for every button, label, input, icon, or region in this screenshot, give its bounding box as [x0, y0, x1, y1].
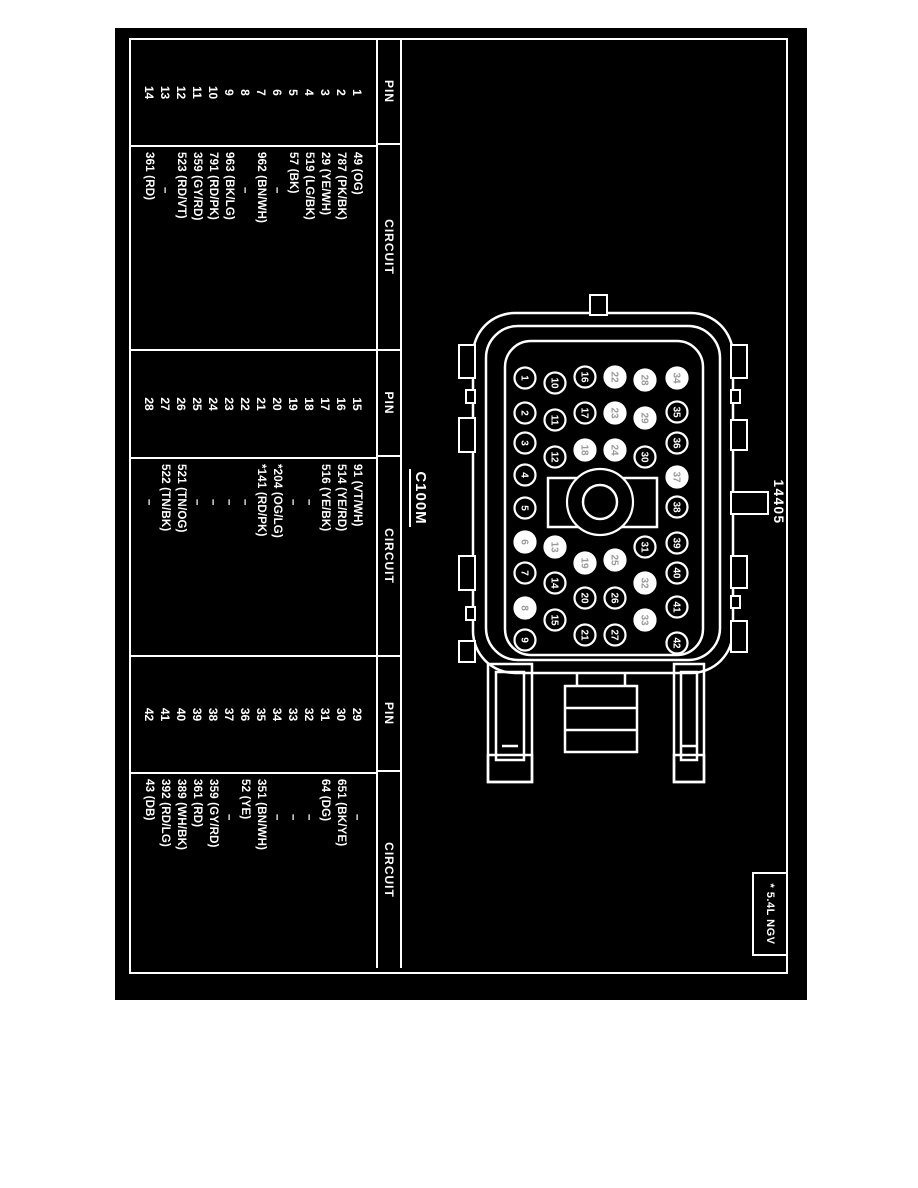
pin-41: 41 [667, 597, 688, 618]
table-row: 8– [237, 40, 253, 349]
svg-text:18: 18 [579, 444, 590, 456]
svg-text:33: 33 [639, 614, 650, 626]
svg-text:19: 19 [579, 557, 590, 569]
svg-text:41: 41 [671, 601, 682, 613]
pin-28: 28 [635, 370, 656, 391]
pin-cell: 19 [286, 351, 300, 457]
svg-text:5: 5 [519, 505, 530, 511]
pin-6: 6 [515, 532, 536, 553]
pin-24: 24 [605, 440, 626, 461]
circuit-cell: – [271, 772, 283, 968]
pin-cell: 1 [350, 40, 364, 145]
left-latch-tab [590, 295, 607, 315]
circuit-cell: – [287, 772, 299, 968]
circuit-cell: 521 (TN/OG) [175, 457, 187, 655]
table-row: 3652 (YE) [237, 657, 253, 968]
table-row: 26521 (TN/OG) [173, 351, 189, 655]
svg-text:35: 35 [671, 406, 682, 418]
svg-text:24: 24 [609, 444, 620, 456]
pin-table-1: PINCIRCUIT149 (OG)2787 (PK/BK)329 (YE/WH… [131, 40, 400, 349]
circuit-cell: 64 (DG) [319, 772, 331, 968]
pin-cell: 15 [350, 351, 364, 457]
table-row: 9963 (BK/LG) [221, 40, 237, 349]
pin-10: 10 [545, 373, 566, 394]
svg-text:6: 6 [519, 539, 530, 545]
pin-37: 37 [667, 467, 688, 488]
pin-32: 32 [635, 573, 656, 594]
svg-text:31: 31 [639, 541, 650, 553]
table-row: 21*141 (RD/PK) [253, 351, 269, 655]
pin-cell: 40 [174, 657, 188, 772]
svg-text:36: 36 [671, 437, 682, 449]
pin-19: 19 [575, 553, 596, 574]
pin-circuit-tables: PINCIRCUIT149 (OG)2787 (PK/BK)329 (YE/WH… [131, 40, 402, 968]
pin-cell: 17 [318, 351, 332, 457]
footnote-text: * 5.4L NGV [764, 883, 776, 944]
circuit-cell: – [191, 457, 203, 655]
circuit-cell: 962 (BN/WH) [255, 145, 267, 349]
svg-text:26: 26 [609, 592, 620, 604]
table-row: 16514 (YE/RD) [333, 351, 349, 655]
svg-text:22: 22 [609, 371, 620, 383]
pin-1: 1 [515, 368, 536, 389]
pin-11: 11 [545, 410, 566, 431]
svg-text:7: 7 [519, 570, 530, 576]
part-number-label: 14405 [771, 462, 786, 542]
table-row: 2787 (PK/BK) [333, 40, 349, 349]
svg-text:13: 13 [549, 541, 560, 553]
circuit-cell: 787 (PK/BK) [335, 145, 347, 349]
circuit-cell: 359 (GY/RD) [207, 772, 219, 968]
pin-3: 3 [515, 433, 536, 454]
circuit-cell: – [303, 772, 315, 968]
pin-34: 34 [667, 368, 688, 389]
pin-cell: 29 [350, 657, 364, 772]
pin-cell: 2 [334, 40, 348, 145]
pin-31: 31 [635, 537, 656, 558]
circuit-cell: 791 (RD/PK) [207, 145, 219, 349]
table-row: 37– [221, 657, 237, 968]
pin-23: 23 [605, 403, 626, 424]
circuit-cell: 519 (LG/BK) [303, 145, 315, 349]
pin-20: 20 [575, 588, 596, 609]
circuit-cell: – [239, 457, 251, 655]
top-index-tabs [731, 345, 768, 652]
circuit-cell: – [223, 772, 235, 968]
svg-text:30: 30 [639, 451, 650, 463]
circuit-cell: 389 (WH/BK) [175, 772, 187, 968]
circuit-cell: 963 (BK/LG) [223, 145, 235, 349]
pin-cell: 13 [158, 40, 172, 145]
pin-9: 9 [515, 630, 536, 651]
pin-39: 39 [667, 533, 688, 554]
pin-cell: 21 [254, 351, 268, 457]
pin-26: 26 [605, 588, 626, 609]
table-row: 33– [285, 657, 301, 968]
table-row: 38359 (GY/RD) [205, 657, 221, 968]
pin-cell: 41 [158, 657, 172, 772]
table-row: 1591 (VT/WH) [349, 351, 365, 655]
svg-text:14: 14 [549, 577, 560, 589]
scanned-wiring-diagram-page: 1234567891011121314151617181920212223242… [0, 0, 918, 1188]
table-row: 4243 (DB) [141, 657, 157, 968]
table-row: 40389 (WH/BK) [173, 657, 189, 968]
circuit-cell: 523 (RD/VT) [175, 145, 187, 349]
pin-cell: 32 [302, 657, 316, 772]
pin-cell: 34 [270, 657, 284, 772]
pin-16: 16 [575, 367, 596, 388]
circuit-cell: 651 (BK/YE) [335, 772, 347, 968]
footnote-box: * 5.4L NGV [752, 872, 788, 956]
svg-text:23: 23 [609, 407, 620, 419]
pin-29: 29 [635, 408, 656, 429]
pin-header: PIN [378, 657, 400, 772]
svg-text:20: 20 [579, 592, 590, 604]
pin-30: 30 [635, 447, 656, 468]
circuit-header: CIRCUIT [378, 772, 400, 968]
circuit-header: CIRCUIT [378, 457, 400, 655]
pin-cell: 7 [254, 40, 268, 145]
pin-cell: 38 [206, 657, 220, 772]
table-row: 10791 (RD/PK) [205, 40, 221, 349]
circuit-cell: 516 (YE/BK) [319, 457, 331, 655]
table-row: 14361 (RD) [141, 40, 157, 349]
pin-cell: 4 [302, 40, 316, 145]
svg-text:16: 16 [579, 371, 590, 383]
pin-cell: 20 [270, 351, 284, 457]
svg-text:25: 25 [609, 554, 620, 566]
svg-text:37: 37 [671, 471, 682, 483]
pin-cell: 25 [190, 351, 204, 457]
circuit-cell: 57 (BK) [287, 145, 299, 349]
pin-5: 5 [515, 498, 536, 519]
table-row: 34– [269, 657, 285, 968]
table-row: 39361 (RD) [189, 657, 205, 968]
pin-cell: 6 [270, 40, 284, 145]
pin-cell: 26 [174, 351, 188, 457]
circuit-cell: – [239, 145, 251, 349]
pin-17: 17 [575, 403, 596, 424]
circuit-header: CIRCUIT [378, 145, 400, 349]
table-row: 25– [189, 351, 205, 655]
circuit-cell: 351 (BN/WH) [255, 772, 267, 968]
pin-cell: 39 [190, 657, 204, 772]
pin-table-3: PINCIRCUIT29–30651 (BK/YE)3164 (DG)32–33… [131, 655, 400, 968]
svg-text:3: 3 [519, 440, 530, 446]
pin-cell: 5 [286, 40, 300, 145]
table-row: 29– [349, 657, 365, 968]
table-row: 11359 (GY/RD) [189, 40, 205, 349]
circuit-cell: 52 (YE) [239, 772, 251, 968]
table-row: 13– [157, 40, 173, 349]
circuit-cell: 359 (GY/RD) [191, 145, 203, 349]
table-row: 7962 (BN/WH) [253, 40, 269, 349]
center-bolt [548, 469, 657, 535]
pin-38: 38 [667, 497, 688, 518]
pin-cell: 24 [206, 351, 220, 457]
pin-cell: 35 [254, 657, 268, 772]
circuit-cell: – [287, 457, 299, 655]
pin-table-2: PINCIRCUIT1591 (VT/WH)16514 (YE/RD)17516… [131, 349, 400, 655]
table-row: 557 (BK) [285, 40, 301, 349]
table-row: 35351 (BN/WH) [253, 657, 269, 968]
circuit-cell: – [351, 772, 363, 968]
pin-cell: 3 [318, 40, 332, 145]
table-row: 27522 (TN/BK) [157, 351, 173, 655]
connector-diagram: 1234567891011121314151617181920212223242… [443, 280, 813, 800]
pin-14: 14 [545, 573, 566, 594]
table-row: 12523 (RD/VT) [173, 40, 189, 349]
pin-40: 40 [667, 563, 688, 584]
table-row: 17516 (YE/BK) [317, 351, 333, 655]
table-row: 6– [269, 40, 285, 349]
svg-text:4: 4 [519, 472, 530, 478]
pin-cell: 11 [190, 40, 204, 145]
svg-text:11: 11 [549, 415, 560, 426]
pin-4: 4 [515, 465, 536, 486]
svg-text:12: 12 [549, 451, 560, 463]
svg-text:34: 34 [671, 372, 682, 384]
table-row: 28– [141, 351, 157, 655]
pin-cell: 8 [238, 40, 252, 145]
pin-header: PIN [378, 351, 400, 457]
pin-25: 25 [605, 550, 626, 571]
circuit-cell: – [303, 457, 315, 655]
pin-cell: 36 [238, 657, 252, 772]
pin-cell: 23 [222, 351, 236, 457]
circuit-cell: 392 (RD/LG) [159, 772, 171, 968]
table-row: 22– [237, 351, 253, 655]
circuit-cell: *141 (RD/PK) [255, 457, 267, 655]
table-row: 3164 (DG) [317, 657, 333, 968]
svg-text:42: 42 [671, 637, 682, 649]
pin-8: 8 [515, 598, 536, 619]
svg-text:10: 10 [549, 377, 560, 389]
table-row: 19– [285, 351, 301, 655]
pin-35: 35 [667, 402, 688, 423]
svg-text:40: 40 [671, 567, 682, 579]
circuit-cell: – [207, 457, 219, 655]
svg-text:1: 1 [519, 375, 530, 381]
circuit-cell: *204 (OG/LG) [271, 457, 283, 655]
pin-cell: 18 [302, 351, 316, 457]
table-row: 4519 (LG/BK) [301, 40, 317, 349]
table-row: 329 (YE/WH) [317, 40, 333, 349]
svg-text:39: 39 [671, 537, 682, 549]
table-row: 18– [301, 351, 317, 655]
pin-cell: 10 [206, 40, 220, 145]
circuit-cell: 43 (DB) [143, 772, 155, 968]
pin-13: 13 [545, 537, 566, 558]
side-mount-bracket [488, 664, 704, 782]
circuit-cell: 29 (YE/WH) [319, 145, 331, 349]
pin-21: 21 [575, 625, 596, 646]
circuit-cell: 522 (TN/BK) [159, 457, 171, 655]
svg-text:8: 8 [519, 605, 530, 611]
pin-cell: 27 [158, 351, 172, 457]
pin-cell: 42 [142, 657, 156, 772]
table-row: 32– [301, 657, 317, 968]
pin-18: 18 [575, 440, 596, 461]
svg-text:38: 38 [671, 501, 682, 513]
connector-id-text: C100M [409, 469, 429, 526]
circuit-cell: – [159, 145, 171, 349]
svg-text:17: 17 [579, 407, 590, 419]
svg-text:32: 32 [639, 577, 650, 589]
circuit-cell: 91 (VT/WH) [351, 457, 363, 655]
table-row: 41392 (RD/LG) [157, 657, 173, 968]
pin-12: 12 [545, 447, 566, 468]
pin-15: 15 [545, 610, 566, 631]
pin-7: 7 [515, 563, 536, 584]
svg-text:15: 15 [549, 614, 560, 626]
pin-cell: 22 [238, 351, 252, 457]
svg-text:9: 9 [519, 637, 530, 643]
circuit-cell: – [223, 457, 235, 655]
pin-cell: 9 [222, 40, 236, 145]
pin-cell: 28 [142, 351, 156, 457]
pin-42: 42 [667, 633, 688, 654]
pin-2: 2 [515, 403, 536, 424]
circuit-cell: – [143, 457, 155, 655]
pin-22: 22 [605, 367, 626, 388]
pin-cell: 12 [174, 40, 188, 145]
svg-text:21: 21 [579, 629, 590, 641]
pin-cell: 14 [142, 40, 156, 145]
circuit-cell: – [271, 145, 283, 349]
pin-27: 27 [605, 625, 626, 646]
circuit-cell: 361 (RD) [143, 145, 155, 349]
svg-text:29: 29 [639, 412, 650, 424]
svg-text:27: 27 [609, 629, 620, 641]
connector-id-label: C100M [409, 452, 429, 544]
circuit-cell: 361 (RD) [191, 772, 203, 968]
circuit-cell: 49 (OG) [351, 145, 363, 349]
pin-header: PIN [378, 40, 400, 145]
circuit-cell: 514 (YE/RD) [335, 457, 347, 655]
pin-36: 36 [667, 433, 688, 454]
pin-cell: 31 [318, 657, 332, 772]
svg-text:2: 2 [519, 410, 530, 416]
pin-33: 33 [635, 610, 656, 631]
table-row: 24– [205, 351, 221, 655]
table-row: 30651 (BK/YE) [333, 657, 349, 968]
table-row: 149 (OG) [349, 40, 365, 349]
table-row: 23– [221, 351, 237, 655]
table-row: 20*204 (OG/LG) [269, 351, 285, 655]
pin-cell: 30 [334, 657, 348, 772]
pin-cell: 33 [286, 657, 300, 772]
svg-text:28: 28 [639, 374, 650, 386]
rotated-canvas: 1234567891011121314151617181920212223242… [0, 0, 918, 1188]
pin-cell: 37 [222, 657, 236, 772]
pin-cell: 16 [334, 351, 348, 457]
